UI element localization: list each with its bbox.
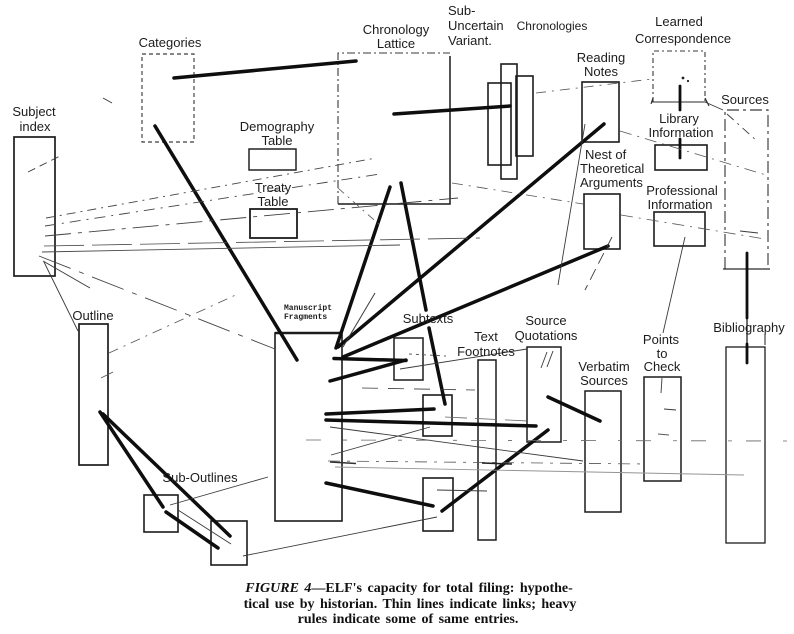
svg-text:index: index — [19, 119, 51, 134]
svg-text:Information: Information — [647, 197, 712, 212]
svg-text:tical use by historian. Thin l: tical use by historian. Thin lines indic… — [244, 597, 577, 612]
svg-text:Verbatim: Verbatim — [578, 359, 629, 374]
svg-text:Arguments: Arguments — [580, 175, 643, 190]
svg-text:Notes: Notes — [584, 64, 618, 79]
svg-text:Sub-: Sub- — [448, 3, 475, 18]
svg-text:Check: Check — [644, 359, 681, 374]
svg-text:Source: Source — [525, 313, 566, 328]
svg-text:Variant.: Variant. — [448, 33, 492, 48]
svg-text:Professional: Professional — [646, 183, 718, 198]
svg-text:Bibliography: Bibliography — [713, 320, 785, 335]
svg-text:Information: Information — [648, 125, 713, 140]
svg-text:Lattice: Lattice — [377, 36, 415, 51]
svg-text:rules indicate some of same en: rules indicate some of same entries. — [298, 612, 519, 627]
svg-text:FIGURE 4—ELF's capacity for to: FIGURE 4—ELF's capacity for total filing… — [244, 581, 573, 596]
svg-text:Uncertain: Uncertain — [448, 18, 504, 33]
svg-text:Sub-Outlines: Sub-Outlines — [162, 470, 238, 485]
svg-text:Fragments: Fragments — [284, 313, 327, 322]
svg-text:Sources: Sources — [580, 373, 628, 388]
svg-text:Learned: Learned — [655, 14, 703, 29]
svg-text:Categories: Categories — [139, 35, 202, 50]
svg-text:Sources: Sources — [721, 92, 769, 107]
svg-text:Points: Points — [643, 332, 680, 347]
svg-text:Outline: Outline — [72, 308, 113, 323]
svg-text:Text: Text — [474, 329, 498, 344]
svg-text:Table: Table — [257, 194, 288, 209]
svg-text:Library: Library — [659, 111, 699, 126]
svg-text:Reading: Reading — [577, 50, 625, 65]
svg-text:Theoretical: Theoretical — [580, 161, 644, 176]
svg-text:Footnotes: Footnotes — [457, 344, 515, 359]
svg-text:Subject: Subject — [12, 104, 56, 119]
svg-text:Quotations: Quotations — [515, 328, 578, 343]
svg-text:Demography: Demography — [240, 119, 315, 134]
svg-text:Manuscript: Manuscript — [284, 304, 332, 313]
svg-text:Chronology: Chronology — [363, 22, 430, 37]
svg-text:Chronologies: Chronologies — [517, 19, 588, 33]
svg-text:Nest of: Nest of — [585, 147, 627, 162]
svg-text:Treaty: Treaty — [255, 180, 292, 195]
svg-text:Table: Table — [261, 133, 292, 148]
svg-text:Subtexts: Subtexts — [403, 311, 454, 326]
svg-text:Correspondence: Correspondence — [635, 31, 731, 46]
